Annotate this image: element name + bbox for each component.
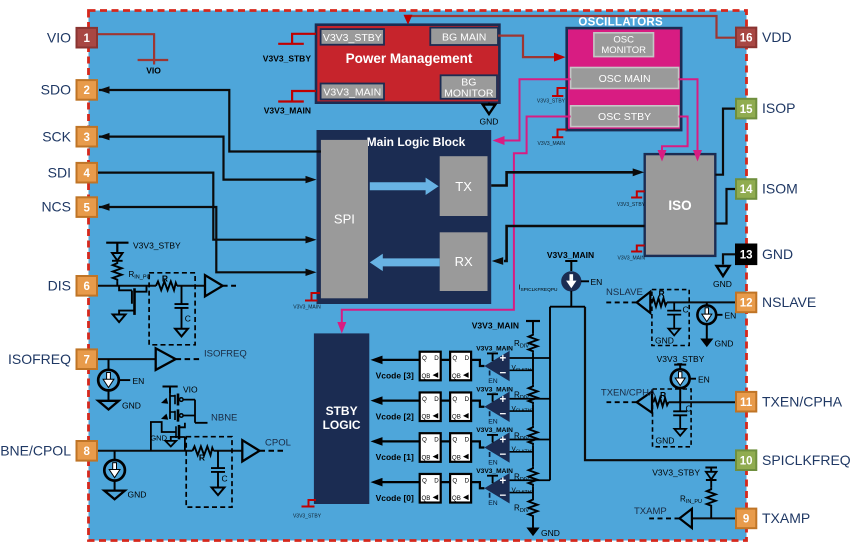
svg-text:EN: EN: [591, 277, 603, 287]
svg-text:TXEN/CPHA: TXEN/CPHA: [601, 388, 656, 399]
svg-text:RX: RX: [455, 254, 473, 269]
svg-text:VIO: VIO: [47, 29, 71, 45]
svg-text:EN: EN: [725, 310, 737, 320]
svg-text:R: R: [659, 289, 665, 299]
svg-text:V3V3_MAIN: V3V3_MAIN: [323, 87, 381, 99]
svg-text:V3V3_MAIN: V3V3_MAIN: [293, 305, 321, 311]
svg-text:MONITOR: MONITOR: [601, 45, 646, 56]
svg-text:V3V3_STBY: V3V3_STBY: [323, 32, 382, 44]
svg-text:Vcode [0]: Vcode [0]: [376, 493, 414, 503]
svg-text:OSC MAIN: OSC MAIN: [599, 73, 651, 85]
svg-text:ISOP: ISOP: [762, 100, 795, 116]
svg-text:SDI: SDI: [48, 164, 71, 180]
svg-text:4: 4: [83, 168, 90, 180]
svg-text:15: 15: [740, 104, 753, 116]
svg-text:LOGIC: LOGIC: [323, 418, 361, 432]
svg-text:10: 10: [740, 455, 753, 467]
svg-text:C: C: [222, 474, 228, 484]
svg-text:EN: EN: [133, 376, 145, 386]
svg-text:V3V3_STBY: V3V3_STBY: [263, 54, 312, 64]
svg-text:3: 3: [83, 132, 89, 144]
svg-text:V3V3_MAIN: V3V3_MAIN: [547, 250, 594, 260]
svg-text:BNE/CPOL: BNE/CPOL: [0, 442, 71, 458]
svg-text:ISOFREQ: ISOFREQ: [204, 349, 247, 360]
svg-text:NBNE: NBNE: [211, 413, 237, 424]
svg-text:GND: GND: [713, 279, 732, 289]
svg-text:SCK: SCK: [42, 128, 71, 144]
svg-text:OSCILLATORS: OSCILLATORS: [578, 17, 663, 29]
svg-text:ISO: ISO: [668, 198, 691, 213]
svg-text:14: 14: [740, 184, 753, 196]
svg-text:VIO: VIO: [183, 385, 198, 395]
svg-text:V3V3_STBY: V3V3_STBY: [537, 98, 566, 104]
svg-text:Main Logic Block: Main Logic Block: [367, 135, 466, 149]
svg-text:OSC STBY: OSC STBY: [598, 111, 651, 123]
svg-text:R: R: [660, 390, 666, 400]
svg-text:13: 13: [740, 250, 753, 262]
svg-text:6: 6: [83, 281, 89, 293]
svg-text:TXEN/CPHA: TXEN/CPHA: [762, 393, 843, 409]
svg-text:Power Management: Power Management: [346, 51, 473, 66]
svg-text:V3V3_STBY: V3V3_STBY: [652, 468, 700, 478]
svg-text:7: 7: [83, 354, 89, 366]
svg-text:MONITOR: MONITOR: [444, 87, 494, 99]
svg-text:OSC: OSC: [613, 35, 634, 46]
svg-text:V3V3_MAIN: V3V3_MAIN: [537, 141, 565, 147]
svg-text:12: 12: [740, 298, 753, 310]
svg-text:TXAMP: TXAMP: [634, 506, 667, 517]
svg-text:EN: EN: [698, 375, 710, 385]
svg-text:VDD: VDD: [762, 29, 792, 45]
svg-text:2: 2: [83, 85, 89, 97]
svg-text:SPI: SPI: [334, 212, 355, 227]
svg-text:V3V3_MAIN: V3V3_MAIN: [617, 256, 645, 262]
svg-text:16: 16: [740, 33, 753, 45]
svg-text:GND: GND: [715, 339, 734, 349]
svg-text:V3V3_MAIN: V3V3_MAIN: [472, 321, 519, 331]
svg-text:STBY: STBY: [326, 404, 358, 418]
svg-text:SDO: SDO: [41, 82, 71, 98]
svg-text:ISOFREQ: ISOFREQ: [8, 351, 71, 367]
svg-text:CPOL: CPOL: [265, 438, 291, 449]
svg-text:V3V3_STBY: V3V3_STBY: [133, 241, 181, 251]
svg-text:GND: GND: [128, 490, 147, 500]
svg-text:9: 9: [743, 514, 749, 526]
svg-text:R: R: [199, 453, 205, 463]
svg-text:Vcode [3]: Vcode [3]: [376, 371, 414, 381]
svg-text:Vcode [1]: Vcode [1]: [376, 452, 414, 462]
svg-text:TXAMP: TXAMP: [762, 510, 810, 526]
svg-text:SPICLKFREQ: SPICLKFREQ: [762, 452, 850, 468]
svg-text:C: C: [185, 314, 191, 324]
svg-text:GND: GND: [541, 528, 560, 538]
svg-text:DIS: DIS: [48, 277, 71, 293]
svg-text:NSLAVE: NSLAVE: [762, 294, 816, 310]
svg-text:8: 8: [83, 446, 90, 458]
svg-text:V3V3_STBY: V3V3_STBY: [657, 354, 705, 364]
svg-text:C: C: [686, 404, 692, 414]
svg-text:GND: GND: [480, 117, 499, 127]
svg-text:V3V3_MAIN: V3V3_MAIN: [264, 106, 311, 116]
svg-text:VIO: VIO: [146, 66, 161, 76]
svg-text:ISOM: ISOM: [762, 181, 798, 197]
svg-text:GND: GND: [150, 434, 167, 443]
svg-text:NSLAVE: NSLAVE: [606, 287, 643, 298]
svg-text:GND: GND: [122, 401, 141, 411]
svg-text:5: 5: [83, 202, 90, 214]
svg-text:GND: GND: [762, 246, 793, 262]
svg-text:R: R: [162, 274, 168, 284]
svg-text:NCS: NCS: [41, 199, 71, 215]
svg-text:1: 1: [83, 33, 90, 45]
svg-text:GND: GND: [656, 436, 675, 446]
svg-text:V3V3_STBY: V3V3_STBY: [293, 514, 322, 520]
svg-text:GND: GND: [655, 336, 674, 346]
svg-text:11: 11: [740, 397, 753, 409]
svg-text:TX: TX: [455, 179, 472, 194]
svg-text:C: C: [683, 305, 689, 315]
svg-text:V3V3_STBY: V3V3_STBY: [617, 202, 646, 208]
svg-text:Vcode [2]: Vcode [2]: [376, 411, 414, 421]
svg-text:BG MAIN: BG MAIN: [442, 32, 486, 44]
